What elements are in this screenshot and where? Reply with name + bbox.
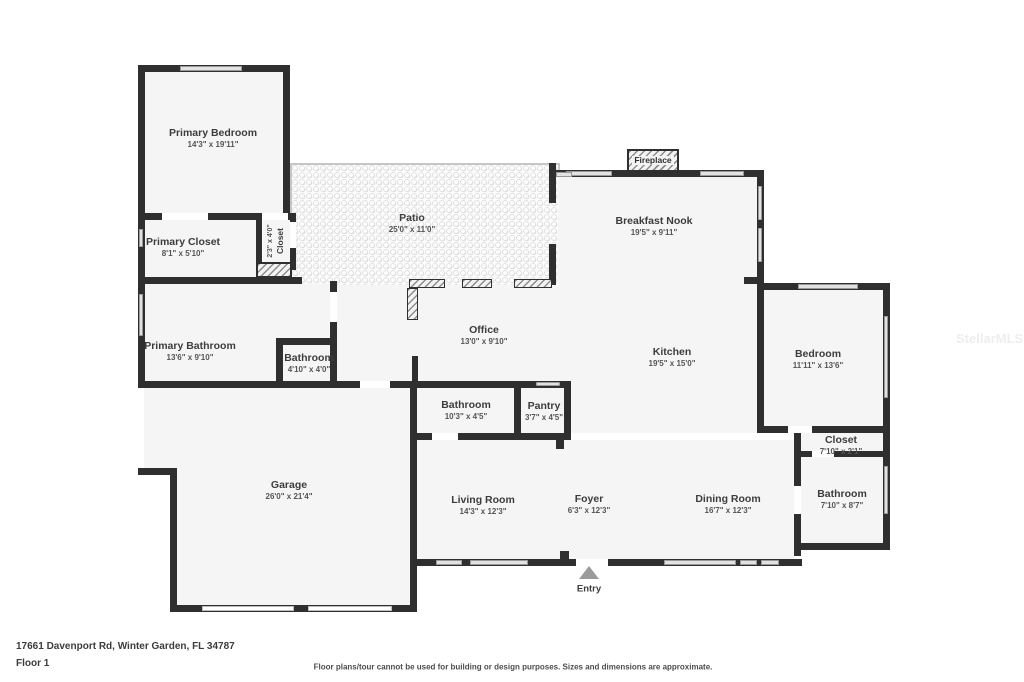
floor-number: Floor 1 <box>16 658 49 669</box>
door-opening <box>162 213 208 220</box>
room-label-pantry: Pantry 3'7" x 4'5" <box>525 400 563 424</box>
door-opening <box>330 292 337 322</box>
wall-segment <box>410 381 417 612</box>
room-label-bathroom-small: Bathroom 4'10" x 4'0" <box>284 352 334 376</box>
room-label-foyer: Foyer 6'3" x 12'3" <box>568 493 611 517</box>
wall-segment <box>276 338 336 345</box>
room-label-office: Office 13'0" x 9'10" <box>461 324 508 348</box>
wall-segment <box>564 381 571 440</box>
door-opening <box>788 426 812 433</box>
wall-segment <box>170 468 177 612</box>
floor-plan-page: Fireplace Primary Bedroom 14'3" x 19'11"… <box>0 0 1024 682</box>
wall-segment <box>138 381 570 388</box>
garage-door-symbol <box>202 606 294 611</box>
room-label-dining-room: Dining Room 16'7" x 12'3" <box>695 493 760 517</box>
wall-segment <box>744 277 757 284</box>
door-opening <box>262 213 288 220</box>
wall-segment <box>514 381 521 440</box>
room-floor <box>144 388 410 468</box>
door-opening <box>794 486 801 514</box>
hatched-wall <box>514 279 552 288</box>
window-symbol <box>180 66 242 71</box>
hatched-wall <box>462 279 492 288</box>
wall-segment <box>560 551 569 560</box>
room-label-garage: Garage 26'0" x 21'4" <box>266 479 313 503</box>
room-label-living-room: Living Room 14'3" x 12'3" <box>451 494 515 518</box>
window-symbol <box>470 560 528 565</box>
disclaimer-text: Floor plans/tour cannot be used for buil… <box>314 663 713 672</box>
room-label-breakfast-nook: Breakfast Nook 19'5" x 9'11" <box>615 215 692 239</box>
window-symbol <box>758 228 762 262</box>
property-address: 17661 Davenport Rd, Winter Garden, FL 34… <box>16 641 235 652</box>
room-label-patio: Patio 25'0" x 11'0" <box>389 212 436 236</box>
wall-segment <box>556 440 564 449</box>
garage-door-symbol <box>308 606 392 611</box>
room-floor <box>337 285 549 382</box>
mls-watermark: StellarMLS <box>956 331 1023 346</box>
room-label-closet-hall: 2'3" x 4'0" Closet <box>266 224 286 257</box>
door-opening <box>360 381 390 388</box>
wall-segment <box>794 543 890 550</box>
window-symbol <box>139 229 143 247</box>
floor-plan-drawing: Fireplace Primary Bedroom 14'3" x 19'11"… <box>0 0 1024 682</box>
room-label-bathroom-mid: Bathroom 10'3" x 4'5" <box>441 399 491 423</box>
window-symbol <box>556 172 572 177</box>
window-symbol <box>884 466 888 514</box>
window-symbol <box>536 382 560 386</box>
hatched-wall <box>407 288 418 320</box>
hatched-wall <box>409 279 445 288</box>
window-symbol <box>566 171 612 176</box>
door-opening <box>432 433 458 440</box>
fireplace-symbol: Fireplace <box>627 149 679 172</box>
room-label-bathroom2: Bathroom 7'10" x 8'7" <box>817 488 867 512</box>
window-symbol <box>664 560 736 565</box>
window-symbol <box>884 316 888 398</box>
door-opening <box>576 559 608 566</box>
room-label-kitchen: Kitchen 19'5" x 15'0" <box>649 346 696 370</box>
window-symbol <box>758 186 762 220</box>
wall-segment <box>412 356 418 383</box>
entry-label: Entry <box>577 584 601 595</box>
door-opening <box>290 222 296 248</box>
wall-segment <box>138 65 145 387</box>
hatched-wall <box>256 262 292 278</box>
room-label-primary-bathroom: Primary Bathroom 13'6" x 9'10" <box>144 340 236 364</box>
wall-segment <box>549 163 556 203</box>
wall-segment <box>138 277 302 284</box>
window-symbol <box>740 560 757 565</box>
entry-arrow-icon <box>579 566 599 579</box>
window-symbol <box>436 560 462 565</box>
fireplace-label: Fireplace <box>632 156 673 165</box>
room-label-closet2: Closet 7'10" x 2'1" <box>820 434 863 458</box>
room-label-primary-bedroom: Primary Bedroom 14'3" x 19'11" <box>169 127 257 151</box>
wall-segment <box>283 65 290 213</box>
wall-segment <box>757 426 890 433</box>
window-symbol <box>761 560 779 565</box>
room-label-bedroom: Bedroom 11'11" x 13'6" <box>793 348 844 372</box>
window-symbol <box>798 284 858 289</box>
window-symbol <box>700 171 744 176</box>
room-label-primary-closet: Primary Closet 8'1" x 5'10" <box>146 236 220 260</box>
window-symbol <box>139 294 143 336</box>
